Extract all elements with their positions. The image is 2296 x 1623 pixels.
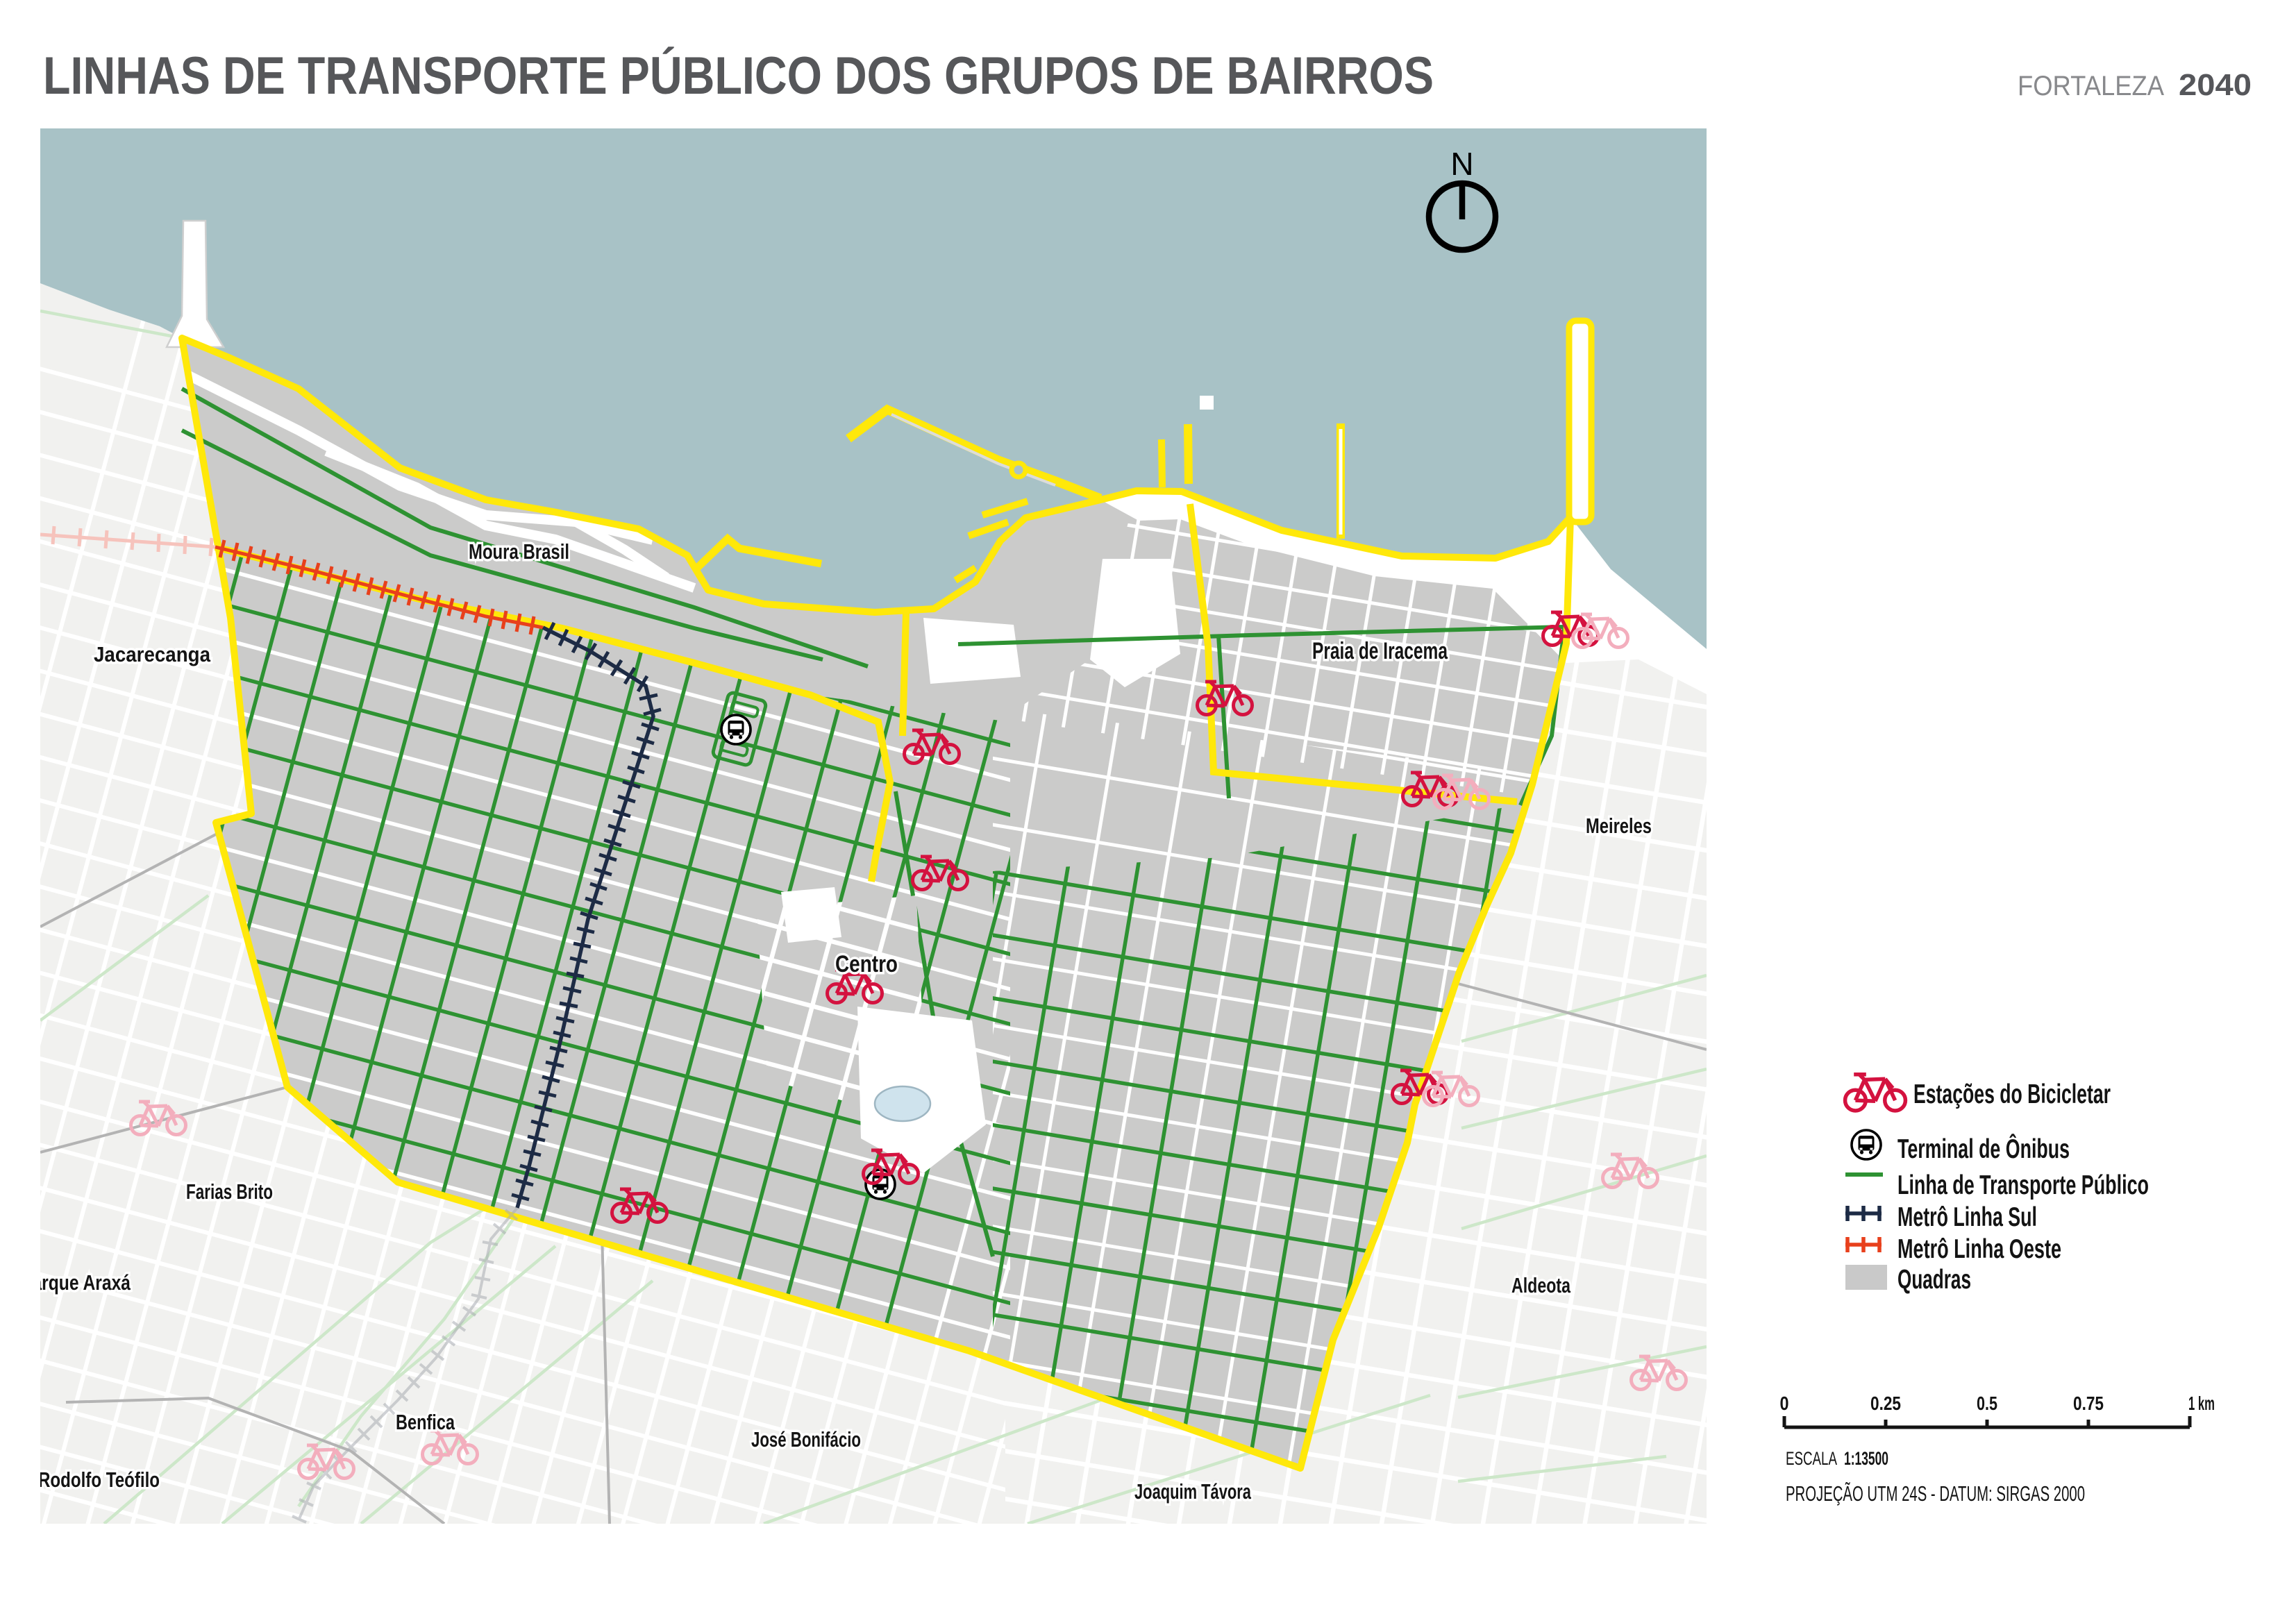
svg-text:Aldeota: Aldeota <box>1511 1273 1571 1297</box>
svg-text:Joaquim Távora: Joaquim Távora <box>1134 1479 1252 1504</box>
svg-text:Centro: Centro <box>835 951 898 977</box>
svg-text:Parque Araxá: Parque Araxá <box>21 1270 131 1295</box>
svg-text:1:13500: 1:13500 <box>1844 1448 1888 1469</box>
svg-text:ESCALA: ESCALA <box>1786 1448 1837 1469</box>
svg-text:0.25: 0.25 <box>1870 1393 1901 1414</box>
svg-text:Terminal de Ônibus: Terminal de Ônibus <box>1897 1133 2070 1164</box>
svg-text:Rodolfo Teófilo: Rodolfo Teófilo <box>38 1468 160 1492</box>
svg-text:N: N <box>1450 146 1473 182</box>
svg-text:Linha de Transporte Público: Linha de Transporte Público <box>1897 1170 2149 1200</box>
svg-text:José Bonifácio: José Bonifácio <box>751 1427 861 1452</box>
svg-text:Moura Brasil: Moura Brasil <box>469 539 569 564</box>
svg-text:Meireles: Meireles <box>1586 814 1652 838</box>
svg-text:Praia de Iracema: Praia de Iracema <box>1312 638 1448 664</box>
svg-text:LINHAS DE TRANSPORTE PÚBLICO D: LINHAS DE TRANSPORTE PÚBLICO DOS GRUPOS … <box>43 47 1434 106</box>
svg-text:Quadras: Quadras <box>1897 1265 1971 1295</box>
svg-text:Benfica: Benfica <box>396 1410 455 1434</box>
svg-text:Estações do Bicicletar: Estações do Bicicletar <box>1913 1079 2111 1109</box>
svg-text:Metrô Linha Sul: Metrô Linha Sul <box>1897 1202 2037 1232</box>
svg-text:Metrô Linha Oeste: Metrô Linha Oeste <box>1897 1234 2061 1264</box>
svg-text:0.5: 0.5 <box>1977 1393 1997 1414</box>
svg-text:0.75: 0.75 <box>2073 1393 2104 1414</box>
svg-text:0: 0 <box>1780 1393 1789 1414</box>
svg-text:2040: 2040 <box>2179 68 2252 102</box>
svg-text:Farias Brito: Farias Brito <box>186 1179 273 1204</box>
svg-text:PROJEÇÃO UTM 24S - DATUM: SIRG: PROJEÇÃO UTM 24S - DATUM: SIRGAS 2000 <box>1786 1481 2085 1506</box>
svg-text:FORTALEZA: FORTALEZA <box>2018 71 2164 101</box>
svg-text:1 km: 1 km <box>2188 1393 2215 1414</box>
svg-text:Jacarecanga: Jacarecanga <box>94 642 211 666</box>
